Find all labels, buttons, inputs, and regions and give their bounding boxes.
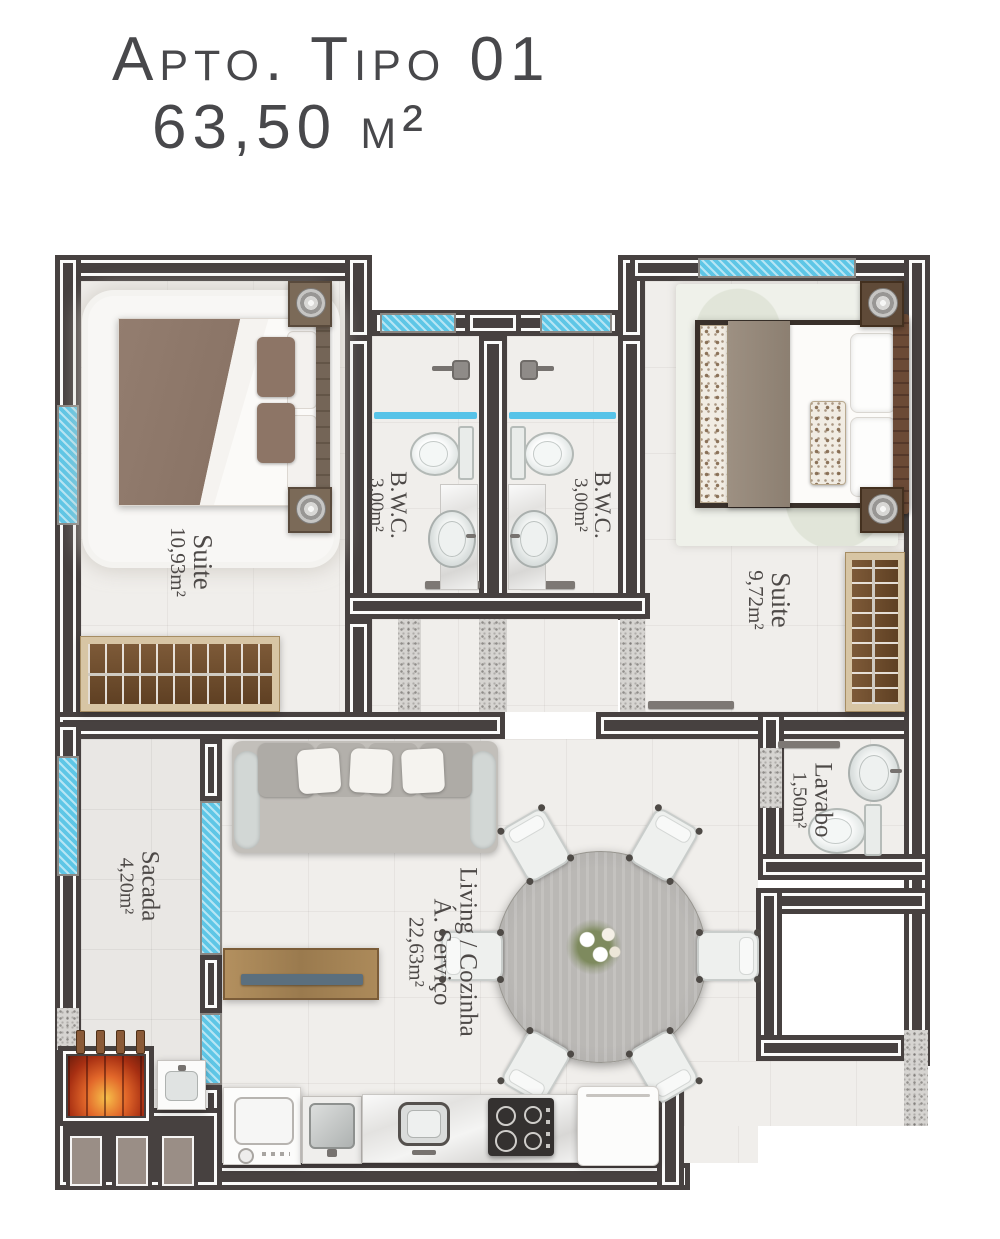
bed-cushion (257, 403, 295, 463)
room-area: 22,63m² (406, 867, 428, 1036)
wall-segment (200, 955, 222, 1013)
toilet-tank (864, 804, 882, 856)
room-name: Lavabo (809, 763, 835, 838)
toilet-tank (510, 426, 526, 480)
bbq-sink-basin (165, 1071, 198, 1101)
bbq-skewer-handle (136, 1030, 145, 1054)
shower-glass (509, 412, 616, 419)
tv-sideboard (223, 948, 379, 1000)
sofa-pillow (297, 748, 342, 795)
lavabo-sink (848, 744, 900, 802)
wall-segment (758, 854, 930, 880)
floor-shaft-room (782, 914, 904, 1035)
toilet-bowl (524, 432, 574, 476)
headboard (316, 314, 330, 506)
shower-head-icon (452, 360, 470, 380)
room-label-suite-right: Suite 9,72m² (745, 570, 795, 629)
door-opening (760, 748, 782, 808)
table-lamp (296, 288, 326, 318)
washing-machine (223, 1087, 301, 1165)
fridge-handle (586, 1094, 650, 1097)
tank-faucet (327, 1149, 337, 1157)
cooktop-knobs (546, 1108, 550, 1148)
window-glass (380, 313, 456, 333)
double-bed (695, 320, 909, 508)
room-name: Living / Cozinha (454, 867, 480, 1036)
room-label-suite-left: Suite 10,93m² (167, 527, 217, 597)
entry-door-opening (904, 1030, 928, 1126)
bathroom-sink (428, 510, 476, 568)
kitchen-sink-basin (407, 1110, 441, 1138)
room-area: 4,20m² (115, 851, 136, 922)
bbq-skewer-handle (96, 1030, 105, 1054)
room-label-lavabo: Lavabo 1,50m² (788, 763, 835, 838)
table-lamp (296, 494, 326, 524)
wardrobe (845, 552, 905, 712)
plan-title: Apto. Tipo 01 (112, 24, 550, 95)
burner (524, 1106, 542, 1124)
dining-chair (697, 931, 759, 981)
room-name-2: Á. Serviço (428, 867, 454, 1036)
bed-pillow (850, 417, 896, 497)
bed-pillow (850, 333, 896, 413)
floor-plan: Apto. Tipo 01 63,50 m² (0, 0, 1000, 1239)
door-opening (398, 619, 421, 712)
wardrobe (80, 636, 280, 712)
room-name: Sacada (136, 851, 162, 922)
headboard (893, 314, 909, 514)
door-opening (479, 619, 507, 712)
bbq-grill (68, 1056, 144, 1116)
window-glass (698, 258, 856, 278)
room-area: 3,00m² (570, 471, 590, 539)
window-glass (57, 405, 79, 525)
floorplan-page: { "title": { "line1": "Apto. Tipo 01", "… (0, 0, 1000, 1239)
sink-faucet (510, 534, 520, 538)
room-name: Suite (767, 570, 795, 629)
wall-segment (479, 336, 507, 619)
wall-segment (55, 712, 505, 739)
bbq-skewer-handle (76, 1030, 85, 1054)
bbq-skewer-handle (116, 1030, 125, 1054)
kitchen-sink (398, 1102, 450, 1146)
room-area: 9,72m² (745, 570, 767, 629)
burner (496, 1106, 516, 1126)
tank-basin (309, 1103, 355, 1149)
room-label-living: Living / Cozinha Á. Serviço 22,63m² (406, 867, 481, 1036)
bed-cushion (810, 401, 846, 485)
washer-door (234, 1097, 294, 1145)
room-area: 3,00m² (366, 471, 386, 539)
room-area: 1,50m² (788, 763, 809, 838)
sink-faucet (890, 769, 902, 773)
burner (495, 1130, 517, 1152)
room-label-bwc-left: B.W.C. 3,00m² (366, 471, 410, 539)
sink-faucet (466, 534, 476, 538)
bed-runner (728, 321, 790, 507)
kitchen-faucet (412, 1150, 436, 1155)
room-label-bwc-right: B.W.C. 3,00m² (570, 471, 614, 539)
structural-pillar (66, 1132, 106, 1190)
table-lamp (868, 288, 898, 318)
toilet-tank (458, 426, 474, 480)
double-bed (118, 318, 322, 506)
sofa-arm (470, 751, 496, 849)
plan-area-title: 63,50 m² (152, 92, 429, 163)
tv (241, 974, 363, 985)
window-glass (540, 313, 612, 333)
wall-segment (345, 593, 650, 619)
refrigerator (577, 1086, 659, 1166)
washer-knob (238, 1148, 254, 1164)
sofa (232, 741, 498, 853)
sink-faucet (178, 1065, 186, 1071)
room-area: 10,93m² (167, 527, 189, 597)
room-name: B.W.C. (590, 471, 614, 539)
floor-entry (684, 1061, 904, 1126)
wall-segment (756, 888, 930, 914)
structural-pillar (158, 1132, 198, 1190)
shower-head-icon (520, 360, 538, 380)
bed-damask-strip (700, 325, 728, 503)
washer-controls (262, 1152, 290, 1156)
room-name: Suite (189, 527, 217, 597)
toilet-bowl (410, 432, 460, 476)
window-glass (57, 756, 79, 876)
wall-segment (465, 310, 521, 336)
wardrobe-hangers (852, 560, 898, 704)
shower-glass (374, 412, 477, 419)
door-opening (620, 619, 645, 712)
wall-segment (345, 255, 372, 340)
sofa-pillow (401, 748, 445, 794)
sofa-pillow (349, 748, 393, 794)
door-leaf (778, 741, 840, 748)
sliding-glass-door (200, 801, 222, 955)
room-label-sacada: Sacada 4,20m² (115, 851, 162, 922)
sofa-arm (234, 751, 260, 849)
laundry-tank (302, 1096, 362, 1164)
bathroom-sink (510, 510, 558, 568)
table-lamp (868, 494, 898, 524)
burner (524, 1132, 542, 1150)
wall-segment (618, 336, 645, 620)
structural-pillar (112, 1132, 152, 1190)
wardrobe-rail (872, 560, 875, 704)
wall-segment (756, 1035, 906, 1061)
wall-segment (200, 739, 222, 801)
bed-cushion (257, 337, 295, 397)
bbq-sink (157, 1060, 206, 1110)
wardrobe-rail (88, 673, 272, 676)
wall-segment (55, 255, 355, 281)
door-leaf (648, 701, 734, 709)
flower-centerpiece (566, 916, 632, 978)
room-name: B.W.C. (386, 471, 410, 539)
cooktop (488, 1098, 554, 1156)
wall-segment (196, 1163, 690, 1190)
